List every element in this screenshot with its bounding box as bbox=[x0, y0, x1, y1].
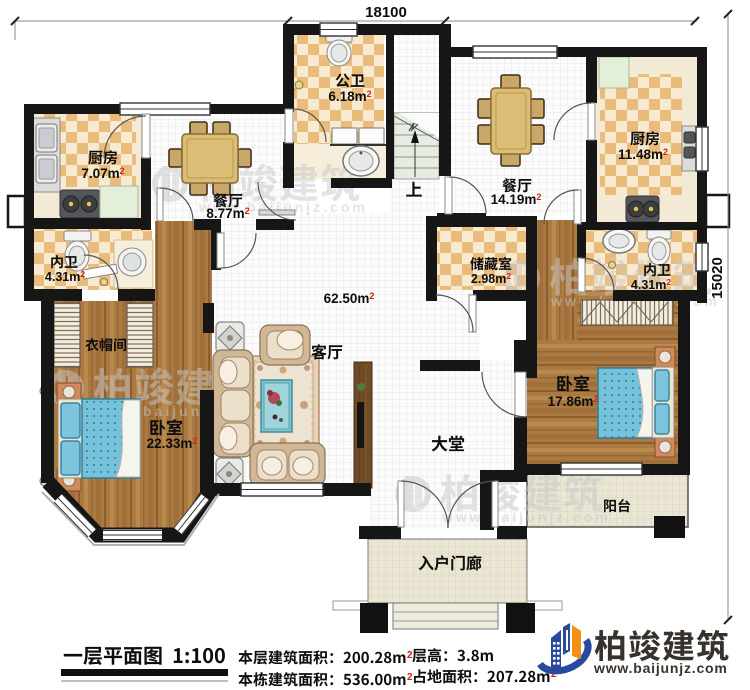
svg-text:8.77m2: 8.77m2 bbox=[206, 206, 249, 221]
svg-text:4.31m2: 4.31m2 bbox=[45, 269, 85, 284]
svg-text:62.50m2: 62.50m2 bbox=[324, 291, 375, 306]
svg-text:2.98m2: 2.98m2 bbox=[471, 271, 511, 286]
svg-text:15020: 15020 bbox=[709, 257, 726, 299]
svg-text:2: 2 bbox=[407, 650, 413, 661]
svg-text:www.baijunjz.com: www.baijunjz.com bbox=[593, 660, 728, 676]
svg-text:17.86m2: 17.86m2 bbox=[548, 394, 599, 409]
svg-text:22.33m2: 22.33m2 bbox=[147, 436, 198, 451]
svg-text:4.31m2: 4.31m2 bbox=[631, 277, 671, 292]
svg-text:18100: 18100 bbox=[365, 4, 407, 21]
svg-text:11.48m2: 11.48m2 bbox=[618, 147, 668, 162]
svg-text:14.19m2: 14.19m2 bbox=[491, 192, 542, 207]
svg-text:2: 2 bbox=[407, 672, 413, 683]
svg-text:www.baijunjz.com: www.baijunjz.com bbox=[441, 509, 611, 525]
svg-text:6.18m2: 6.18m2 bbox=[328, 89, 371, 104]
svg-text:7.07m2: 7.07m2 bbox=[81, 166, 124, 181]
